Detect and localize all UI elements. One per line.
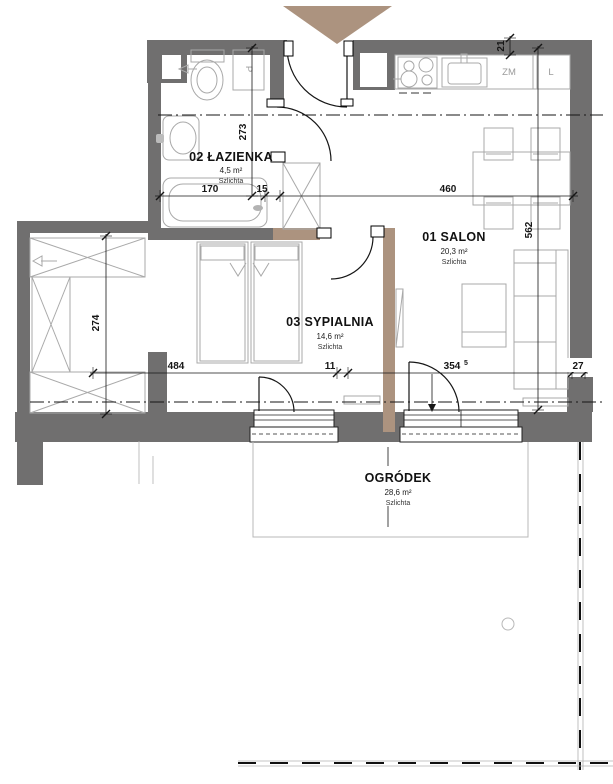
dim-460: 460 [440,184,457,195]
dim-11: 11 [325,361,336,372]
dim-484: 484 [168,361,185,372]
dining-set [473,128,570,229]
living-furniture [344,250,568,406]
dim-354: 354 [444,361,461,372]
room-area-sypialnia: 14,6 m² [316,332,343,341]
section-lines [30,115,603,402]
slide-arrow-icon [33,256,57,266]
garden [139,441,613,770]
bedroom-door-arc [331,237,373,279]
dim-354-sup: 5 [464,360,468,367]
chair [484,197,513,229]
doors [259,41,459,412]
bedroom-balcony-door-arc [259,377,294,412]
chair [484,128,513,160]
room-labels: 02 ŁAZIENKA 4,5 m² Szlichta 01 SALON 20,… [189,150,486,507]
accent-walls [273,228,395,432]
partition-wall [273,228,320,240]
chair [531,128,560,160]
basin-tap [156,134,164,143]
room-title-ogrodek: OGRÓDEK [365,470,432,485]
floor-plan-canvas: P ZM L [0,0,613,784]
dim-27: 27 [572,361,584,372]
dishwasher-label: ZM [502,67,516,78]
coffee-table [462,284,506,347]
tub-faucet [253,205,263,211]
pillow [255,246,298,260]
room-area-ogrodek: 28,6 m² [384,488,411,497]
beds [197,242,302,363]
balcony-door-unit [254,410,334,427]
threshold [344,396,380,404]
chair [531,197,560,229]
dim-170: 170 [202,184,219,195]
dim-273: 273 [238,123,249,140]
kitchen: ZM L [393,54,570,93]
floor-plan-svg: P ZM L [0,0,613,784]
room-finish-lazienka: Szlichta [219,178,244,185]
room-finish-salon: Szlichta [442,259,467,266]
fridge-label: L [548,67,553,78]
room-title-lazienka: 02 ŁAZIENKA [189,150,273,164]
wardrobes [30,163,320,413]
sofa [514,250,568,389]
entrance-door-arc [287,47,347,107]
dim-274: 274 [91,314,102,331]
entrance-arrow-icon [283,6,392,44]
partition-wall [383,228,395,432]
room-title-sypialnia: 03 SYPIALNIA [286,315,374,329]
pillow [201,246,244,260]
garden-marker [502,618,514,630]
dim-15: 15 [256,184,268,195]
dim-21: 21 [496,40,507,52]
dim-562: 562 [524,221,535,238]
room-finish-ogrodek: Szlichta [386,500,411,507]
room-area-lazienka: 4,5 m² [220,166,243,175]
room-title-salon: 01 SALON [422,230,486,244]
room-area-salon: 20,3 m² [440,247,467,256]
room-finish-sypialnia: Szlichta [318,344,343,351]
